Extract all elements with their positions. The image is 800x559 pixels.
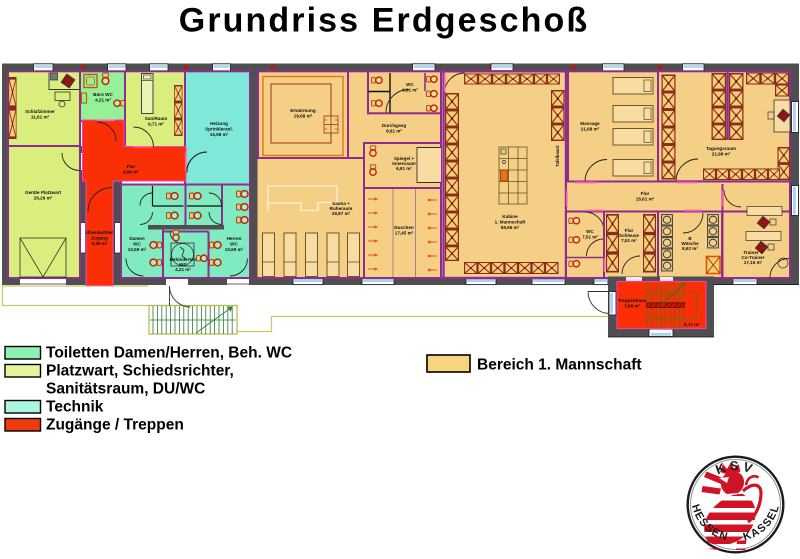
- svg-text:Erwärmung19,68 m²: Erwärmung19,68 m²: [290, 108, 315, 118]
- svg-text:Platzwart, Schiedsrichter,: Platzwart, Schiedsrichter,: [46, 363, 234, 380]
- svg-text:Massage21,68 m²: Massage21,68 m²: [580, 121, 600, 131]
- svg-text:Tafelboard: Tafelboard: [555, 145, 560, 167]
- svg-text:Trainer +Co-Trainer17,15 m²: Trainer +Co-Trainer17,15 m²: [742, 250, 765, 265]
- svg-text:Büro WC4,21 m²: Büro WC4,21 m²: [93, 92, 113, 102]
- svg-text:Bereich 1. Mannschaft: Bereich 1. Mannschaft: [477, 357, 642, 374]
- svg-text:SaniRaum9,71 m²: SaniRaum9,71 m²: [145, 116, 167, 126]
- svg-text:Technik: Technik: [46, 399, 104, 416]
- svg-text:Toiletten Damen/Herren, Beh. W: Toiletten Damen/Herren, Beh. WC: [46, 345, 292, 362]
- svg-text:Zugänge / Treppen: Zugänge / Treppen: [46, 417, 184, 434]
- svg-text:Sauna +Ruheraum29,87 m²: Sauna +Ruheraum29,87 m²: [330, 201, 353, 216]
- svg-text:Duschen17,45 m²: Duschen17,45 m²: [394, 225, 414, 235]
- svg-text:Grundriss Erdgeschoß: Grundriss Erdgeschoß: [179, 2, 589, 40]
- svg-text:Sanitätsraum, DU/WC: Sanitätsraum, DU/WC: [46, 381, 205, 398]
- svg-text:5,17 m²: 5,17 m²: [684, 322, 700, 327]
